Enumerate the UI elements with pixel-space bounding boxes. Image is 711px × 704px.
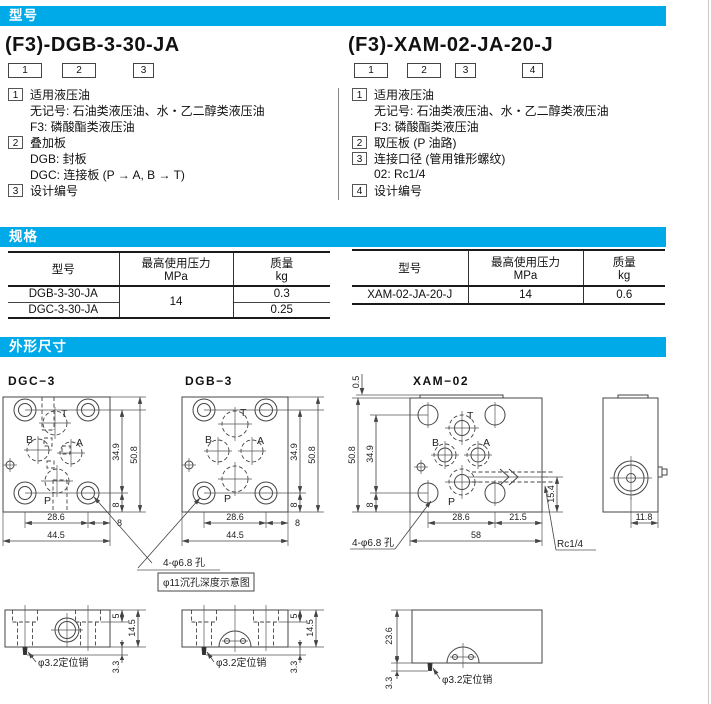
legend-text: 适用液压油 bbox=[30, 86, 90, 103]
dim-34.9: 34.9 bbox=[111, 443, 121, 461]
locating-pin-hole bbox=[414, 460, 428, 474]
mass-label: 质量 bbox=[234, 255, 331, 271]
spec-cell-mass: 0.6 bbox=[583, 286, 665, 304]
spec-cell-model: DGB-3-30-JA bbox=[8, 286, 119, 302]
port-label-P: P bbox=[448, 496, 455, 508]
dim-34.9: 34.9 bbox=[365, 445, 375, 463]
dim-3.3: 3.3 bbox=[289, 661, 299, 674]
xam02-side-view: 11.8 bbox=[603, 395, 667, 528]
legend-item: 1适用液压油 bbox=[8, 86, 338, 102]
spec-header-mass: 质量 kg bbox=[233, 252, 330, 286]
model-code-left: (F3)-DGB-3-30-JA bbox=[5, 34, 180, 57]
legend-text: 02: Rc1/4 bbox=[374, 167, 425, 181]
model-legend-right: 1适用液压油 无记号: 石油类液压油、水・乙二醇类液压油 F3: 磷酸酯类液压油… bbox=[352, 86, 682, 198]
mass-unit: kg bbox=[234, 271, 331, 283]
legend-item: F3: 磷酸酯类液压油 bbox=[352, 118, 682, 134]
legend-item: 无记号: 石油类液压油、水・乙二醇类液压油 bbox=[8, 102, 338, 118]
pressure-label: 最高使用压力 bbox=[120, 255, 233, 271]
dim-8: 8 bbox=[295, 518, 300, 528]
port-label-T: T bbox=[240, 407, 247, 419]
legend-text: 设计编号 bbox=[374, 182, 422, 199]
dim-0.5: 0.5 bbox=[351, 376, 361, 389]
legend-item: 3连接口径 (管用锥形螺纹) bbox=[352, 150, 682, 166]
spec-header-model: 型号 bbox=[352, 250, 468, 286]
legend-text: 无记号: 石油类液压油、水・乙二醇类液压油 bbox=[30, 102, 265, 119]
locating-pin bbox=[202, 647, 207, 655]
locating-pin-hole bbox=[182, 458, 196, 472]
spec-cell-mass: 0.3 bbox=[233, 286, 330, 302]
dim-50.8: 50.8 bbox=[129, 446, 139, 464]
section-header-spec: 规格 bbox=[0, 227, 666, 247]
dim-21.5: 21.5 bbox=[509, 512, 527, 522]
counterbore-note: φ11沉孔深度示意图 bbox=[163, 576, 250, 589]
item-marker: 4 bbox=[352, 184, 367, 197]
legend-text: DGC: 连接板 (P → A, B → T) bbox=[30, 166, 185, 183]
legend-item: DGC: 连接板 (P → A, B → T) bbox=[8, 166, 338, 182]
port-label-P: P bbox=[44, 495, 51, 507]
dgb3-side-view: φ3.2定位销 5 14.5 3.3 bbox=[182, 605, 324, 673]
dim-44.5: 44.5 bbox=[47, 530, 65, 540]
dim-23.6: 23.6 bbox=[384, 627, 394, 645]
column-divider bbox=[338, 88, 339, 200]
legend-item: 1适用液压油 bbox=[352, 86, 682, 102]
spec-table-right: 型号 最高使用压力 MPa 质量 kg XAM-02-JA-20-J 14 0.… bbox=[352, 249, 665, 305]
dim-50.8: 50.8 bbox=[347, 446, 357, 464]
dim-8: 8 bbox=[289, 502, 299, 507]
gauge-passage bbox=[468, 469, 553, 485]
code-box-1: 1 bbox=[8, 63, 42, 78]
spec-header-pressure: 最高使用压力 MPa bbox=[119, 252, 233, 286]
port-label-B: B bbox=[205, 434, 212, 446]
legend-item: 2取压板 (P 油路) bbox=[352, 134, 682, 150]
locating-pin bbox=[428, 663, 433, 671]
dgb3-title: DGB−3 bbox=[185, 374, 233, 388]
dgc3-top-view: DGC−3 T B A P 34.9 50.8 bbox=[3, 374, 152, 563]
holes-callout-text: 4-φ6.8 孔 bbox=[163, 557, 205, 569]
xam02-bottom-side-view: φ3.2定位销 23.6 3.3 bbox=[384, 610, 542, 689]
mounting-hole bbox=[485, 480, 505, 506]
dim-8: 8 bbox=[111, 502, 121, 507]
locating-pin bbox=[23, 647, 28, 655]
dim-34.9: 34.9 bbox=[289, 443, 299, 461]
pressure-unit: MPa bbox=[120, 271, 233, 283]
item-marker: 2 bbox=[8, 136, 23, 149]
code-box-r1: 1 bbox=[354, 63, 388, 78]
legend-item: F3: 磷酸酯类液压油 bbox=[8, 118, 338, 134]
mass-label: 质量 bbox=[584, 254, 666, 270]
dim-11.8: 11.8 bbox=[636, 512, 653, 522]
dgc3-title: DGC−3 bbox=[8, 374, 56, 388]
dim-14.5: 14.5 bbox=[305, 619, 315, 637]
legend-item: DGB: 封板 bbox=[8, 150, 338, 166]
legend-item: 4设计编号 bbox=[352, 182, 682, 198]
legend-text: 适用液压油 bbox=[374, 86, 434, 103]
mounting-hole bbox=[485, 402, 505, 428]
port-label-A: A bbox=[76, 437, 83, 449]
xam02-top-view: XAM−02 T B A P bbox=[347, 374, 596, 550]
pressure-unit: MPa bbox=[469, 270, 583, 282]
legend-text: 取压板 (P 油路) bbox=[374, 134, 456, 151]
spec-header-model: 型号 bbox=[8, 252, 119, 286]
legend-item: 2叠加板 bbox=[8, 134, 338, 150]
dim-28.6: 28.6 bbox=[452, 512, 470, 522]
item-marker: 3 bbox=[8, 184, 23, 197]
model-code-right: (F3)-XAM-02-JA-20-J bbox=[348, 34, 553, 57]
code-box-3: 3 bbox=[133, 63, 154, 78]
pin-callout: φ3.2定位销 bbox=[216, 656, 266, 669]
legend-text: 无记号: 石油类液压油、水・乙二醇类液压油 bbox=[374, 102, 609, 119]
spec-header-mass: 质量 kg bbox=[583, 250, 665, 286]
section-header-model: 型号 bbox=[0, 6, 666, 26]
pin-callout: φ3.2定位销 bbox=[38, 656, 88, 669]
dim-44.5: 44.5 bbox=[226, 530, 244, 540]
legend-text: 连接口径 (管用锥形螺纹) bbox=[374, 150, 505, 167]
xam02-title: XAM−02 bbox=[413, 374, 469, 388]
dgb3-top-view: DGB−3 T B A P 34.9 50.8 8 bbox=[138, 374, 324, 568]
section-title-model: 型号 bbox=[9, 8, 38, 23]
dim-3.3: 3.3 bbox=[111, 661, 121, 674]
dimension-drawings: DGC−3 T B A P 34.9 50.8 bbox=[0, 360, 711, 704]
mass-unit: kg bbox=[584, 270, 666, 282]
port-label-B: B bbox=[26, 434, 33, 446]
code-box-r2: 2 bbox=[407, 63, 441, 78]
dim-5: 5 bbox=[289, 613, 299, 618]
dim-50.8: 50.8 bbox=[307, 446, 317, 464]
dim-58: 58 bbox=[471, 530, 481, 540]
item-marker: 1 bbox=[8, 88, 23, 101]
legend-item: 3设计编号 bbox=[8, 182, 338, 198]
holes-callout: 4-φ6.8 孔 φ11沉孔深度示意图 bbox=[137, 557, 254, 591]
legend-item: 无记号: 石油类液压油、水・乙二醇类液压油 bbox=[352, 102, 682, 118]
dim-28.6: 28.6 bbox=[226, 512, 244, 522]
port-label-T: T bbox=[467, 410, 474, 422]
item-marker: 2 bbox=[352, 136, 367, 149]
spec-header-pressure: 最高使用压力 MPa bbox=[468, 250, 583, 286]
port-label-B: B bbox=[432, 437, 439, 449]
code-box-2: 2 bbox=[62, 63, 96, 78]
item-marker: 1 bbox=[352, 88, 367, 101]
port-label-P: P bbox=[224, 493, 231, 505]
dim-14.5: 14.5 bbox=[127, 619, 137, 637]
holes-callout-text: 4-φ6.8 孔 bbox=[352, 537, 394, 549]
section-title-spec: 规格 bbox=[9, 229, 38, 244]
spec-cell-model: XAM-02-JA-20-J bbox=[352, 286, 468, 304]
spec-cell-mass: 0.25 bbox=[233, 302, 330, 318]
model-legend-left: 1适用液压油 无记号: 石油类液压油、水・乙二醇类液压油 F3: 磷酸酯类液压油… bbox=[8, 86, 338, 198]
spec-table-left: 型号 最高使用压力 MPa 质量 kg DGB-3-30-JA 14 0.3 D… bbox=[8, 251, 330, 319]
datasheet-page: 型号 (F3)-DGB-3-30-JA (F3)-XAM-02-JA-20-J … bbox=[0, 0, 711, 704]
section-title-outline: 外形尺寸 bbox=[9, 339, 67, 354]
item-marker: 3 bbox=[352, 152, 367, 165]
dim-28.6: 28.6 bbox=[47, 512, 65, 522]
legend-text: DGB: 封板 bbox=[30, 150, 87, 167]
dim-3.3: 3.3 bbox=[384, 677, 394, 690]
gauge-fitting bbox=[658, 467, 667, 477]
port-label-A: A bbox=[483, 437, 490, 449]
pressure-label: 最高使用压力 bbox=[469, 254, 583, 270]
rc-callout-text: Rc1/4 bbox=[557, 539, 584, 550]
port-label-A: A bbox=[257, 435, 264, 447]
legend-item: 02: Rc1/4 bbox=[352, 166, 682, 182]
spec-cell-pressure: 14 bbox=[119, 286, 233, 318]
spec-cell-model: DGC-3-30-JA bbox=[8, 302, 119, 318]
code-box-r4: 4 bbox=[522, 63, 543, 78]
spec-cell-pressure: 14 bbox=[468, 286, 583, 304]
dim-5: 5 bbox=[111, 613, 121, 618]
legend-text: F3: 磷酸酯类液压油 bbox=[374, 118, 479, 135]
dim-8: 8 bbox=[365, 502, 375, 507]
legend-text: 叠加板 bbox=[30, 134, 66, 151]
legend-text: F3: 磷酸酯类液压油 bbox=[30, 118, 135, 135]
dgc3-side-view: φ3.2定位销 5 14.5 3.3 bbox=[5, 605, 146, 673]
legend-text: 设计编号 bbox=[30, 182, 78, 199]
locating-pin-hole bbox=[3, 458, 17, 472]
section-header-outline: 外形尺寸 bbox=[0, 337, 666, 357]
code-box-r3: 3 bbox=[455, 63, 476, 78]
pin-callout: φ3.2定位销 bbox=[442, 673, 492, 686]
